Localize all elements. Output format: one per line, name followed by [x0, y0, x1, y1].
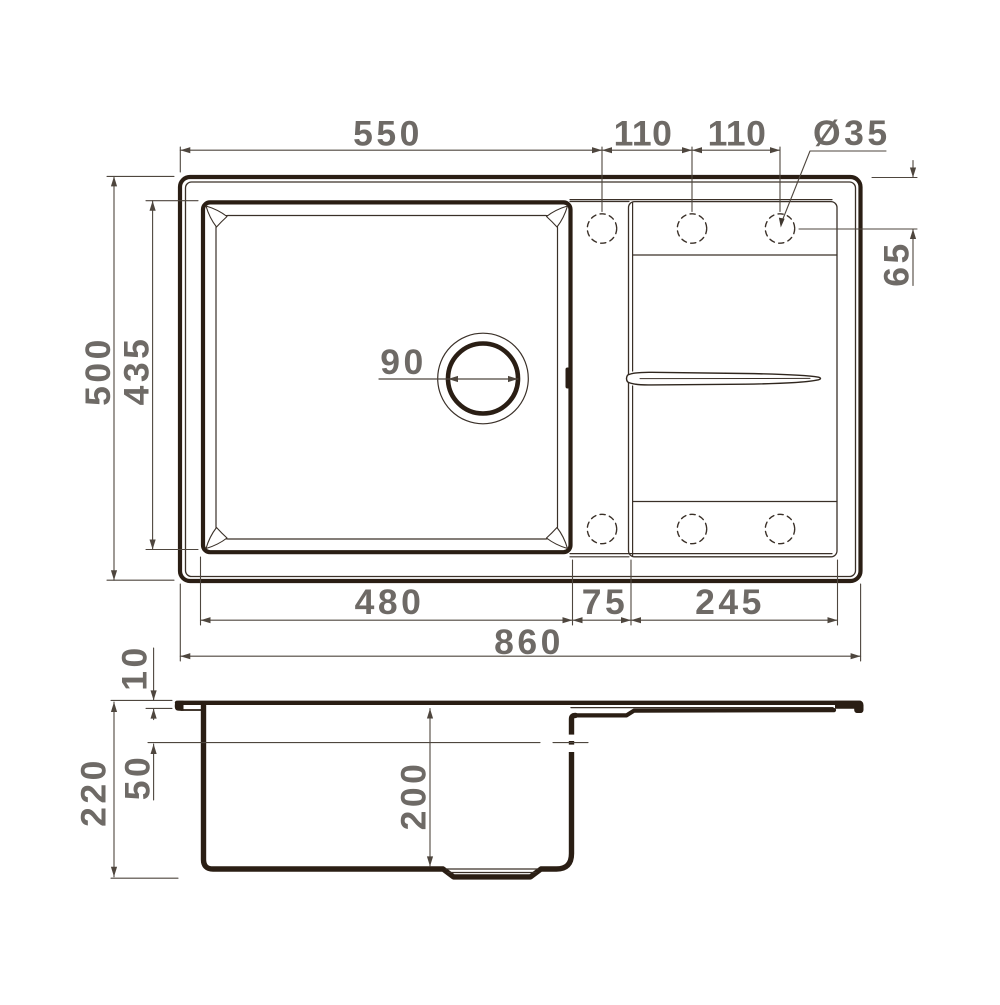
svg-text:110: 110 [708, 114, 767, 154]
svg-text:65: 65 [877, 240, 917, 287]
svg-text:110: 110 [614, 114, 673, 154]
svg-text:860: 860 [494, 622, 564, 662]
svg-text:435: 435 [117, 336, 157, 406]
svg-text:500: 500 [78, 336, 118, 406]
svg-text:75: 75 [582, 582, 629, 622]
svg-text:10: 10 [115, 644, 155, 691]
svg-text:220: 220 [74, 757, 114, 827]
svg-text:Ø35: Ø35 [813, 113, 891, 153]
svg-text:200: 200 [394, 761, 434, 831]
svg-text:90: 90 [380, 342, 427, 382]
svg-text:245: 245 [695, 582, 765, 622]
svg-text:480: 480 [355, 582, 425, 622]
svg-text:50: 50 [118, 754, 158, 801]
svg-text:550: 550 [353, 114, 423, 154]
